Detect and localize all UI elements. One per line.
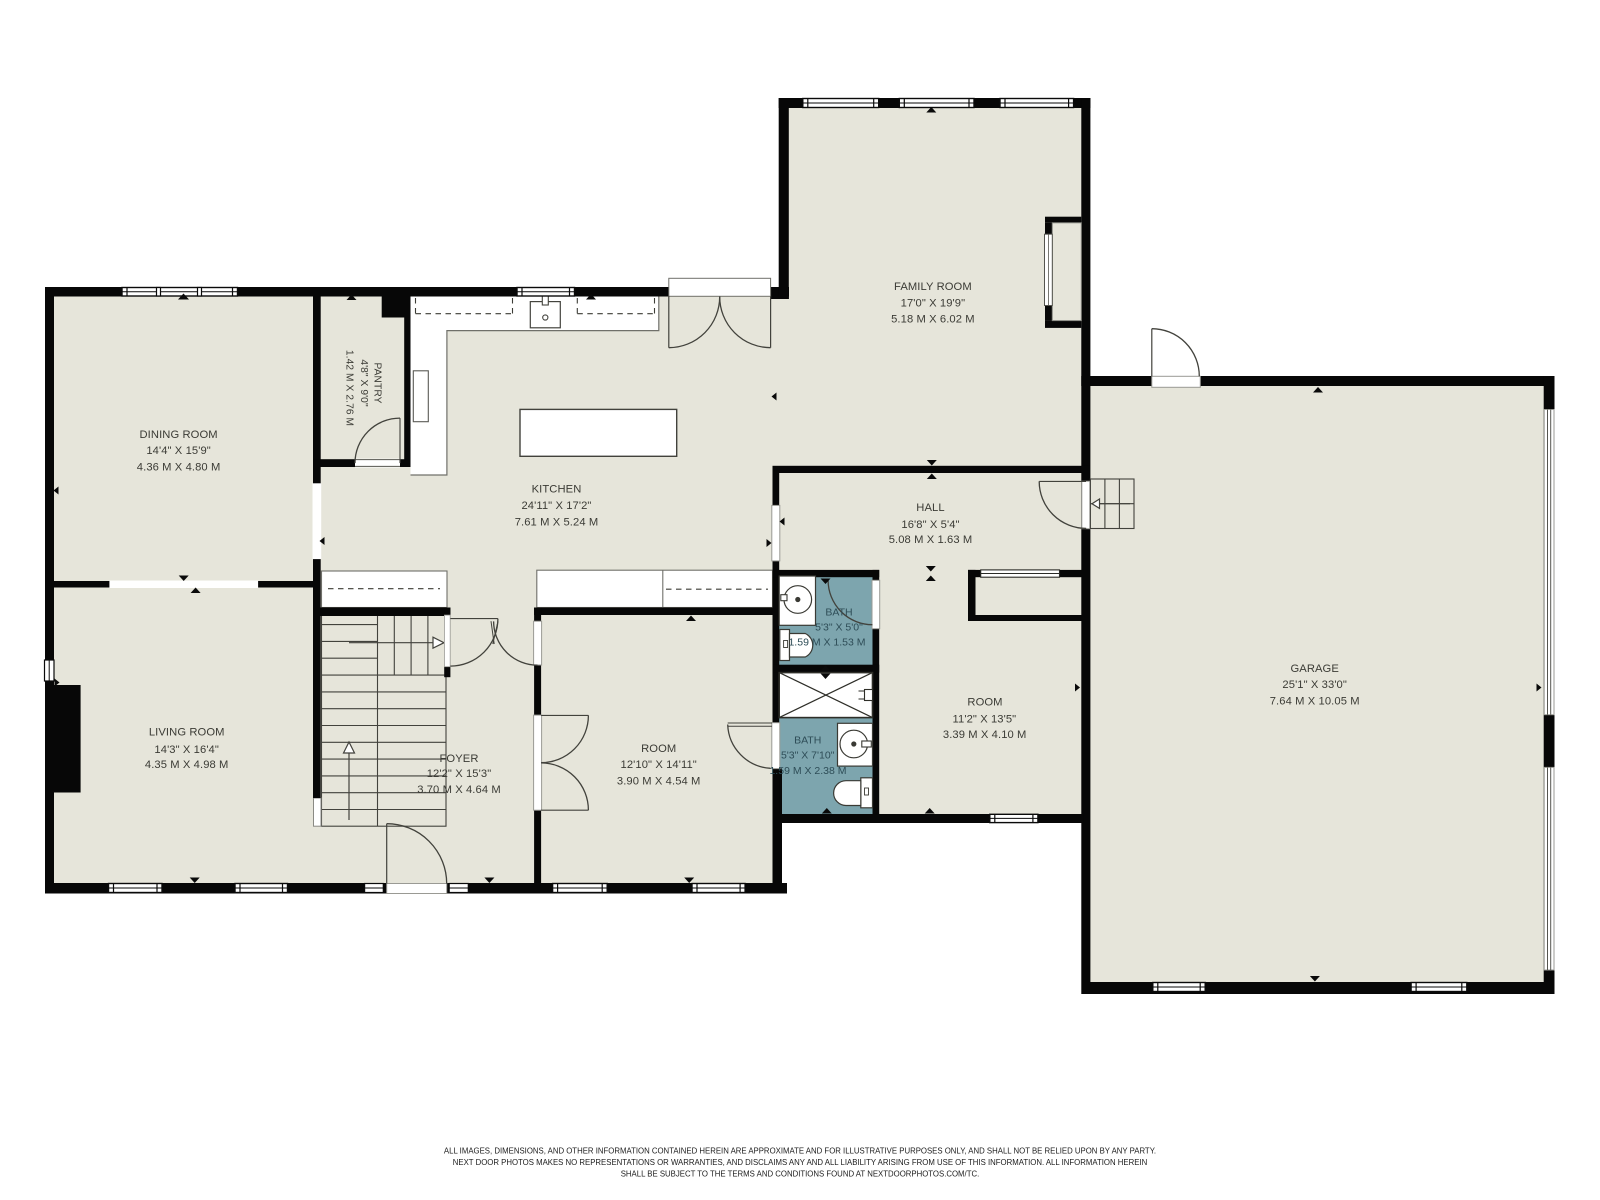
svg-text:1.42 M X 2.76 M: 1.42 M X 2.76 M bbox=[344, 350, 355, 426]
svg-text:5'3" X 5'0": 5'3" X 5'0" bbox=[815, 622, 863, 634]
svg-text:3.70 M X 4.64 M: 3.70 M X 4.64 M bbox=[417, 784, 501, 796]
svg-text:16'8" X 5'4": 16'8" X 5'4" bbox=[901, 519, 959, 531]
svg-text:7.61 M X 5.24 M: 7.61 M X 5.24 M bbox=[515, 517, 599, 529]
svg-text:DINING ROOM: DINING ROOM bbox=[140, 429, 218, 441]
svg-text:HALL: HALL bbox=[916, 502, 944, 514]
svg-text:5.08 M X 1.63 M: 5.08 M X 1.63 M bbox=[889, 534, 973, 546]
svg-text:5'3" X 7'10": 5'3" X 7'10" bbox=[781, 750, 835, 762]
svg-text:4'8" X 9'0": 4'8" X 9'0" bbox=[358, 359, 369, 407]
svg-text:GARAGE: GARAGE bbox=[1290, 663, 1338, 675]
svg-text:4.36 M X 4.80 M: 4.36 M X 4.80 M bbox=[137, 461, 221, 473]
svg-text:1.59 M X 1.53 M: 1.59 M X 1.53 M bbox=[788, 637, 865, 649]
svg-text:14'3" X 16'4": 14'3" X 16'4" bbox=[154, 744, 219, 756]
svg-text:FAMILY ROOM: FAMILY ROOM bbox=[894, 281, 972, 293]
svg-text:4.35 M X 4.98 M: 4.35 M X 4.98 M bbox=[145, 759, 229, 771]
svg-text:3.39 M X 4.10 M: 3.39 M X 4.10 M bbox=[943, 729, 1027, 741]
svg-text:ROOM: ROOM bbox=[967, 696, 1002, 708]
svg-text:17'0" X 19'9": 17'0" X 19'9" bbox=[901, 298, 966, 310]
svg-text:BATH: BATH bbox=[794, 735, 821, 747]
svg-text:NEXT DOOR PHOTOS MAKES NO REPR: NEXT DOOR PHOTOS MAKES NO REPRESENTATION… bbox=[453, 1158, 1147, 1167]
svg-text:3.90 M X 4.54 M: 3.90 M X 4.54 M bbox=[617, 776, 701, 788]
svg-text:FOYER: FOYER bbox=[439, 753, 478, 765]
svg-text:5.18 M X 6.02 M: 5.18 M X 6.02 M bbox=[891, 313, 975, 325]
svg-text:24'11" X 17'2": 24'11" X 17'2" bbox=[521, 500, 591, 512]
svg-text:PANTRY: PANTRY bbox=[372, 363, 383, 404]
svg-text:1.59 M X 2.38 M: 1.59 M X 2.38 M bbox=[769, 765, 846, 777]
svg-text:11'2" X 13'5": 11'2" X 13'5" bbox=[953, 714, 1017, 726]
svg-text:12'2" X 15'3": 12'2" X 15'3" bbox=[427, 768, 492, 780]
svg-text:KITCHEN: KITCHEN bbox=[532, 484, 582, 496]
svg-text:SHALL BE SUBJECT TO THE TERMS: SHALL BE SUBJECT TO THE TERMS AND CONDIT… bbox=[621, 1170, 980, 1179]
svg-text:14'4" X 15'9": 14'4" X 15'9" bbox=[146, 445, 211, 457]
svg-text:12'10" X 14'11": 12'10" X 14'11" bbox=[621, 759, 697, 771]
svg-text:LIVING ROOM: LIVING ROOM bbox=[149, 727, 225, 739]
svg-text:BATH: BATH bbox=[825, 607, 852, 619]
svg-text:ROOM: ROOM bbox=[641, 743, 676, 755]
svg-text:7.64 M X 10.05 M: 7.64 M X 10.05 M bbox=[1270, 695, 1360, 707]
svg-text:ALL IMAGES, DIMENSIONS, AND OT: ALL IMAGES, DIMENSIONS, AND OTHER INFORM… bbox=[444, 1147, 1156, 1156]
svg-text:25'1" X 33'0": 25'1" X 33'0" bbox=[1282, 679, 1347, 691]
